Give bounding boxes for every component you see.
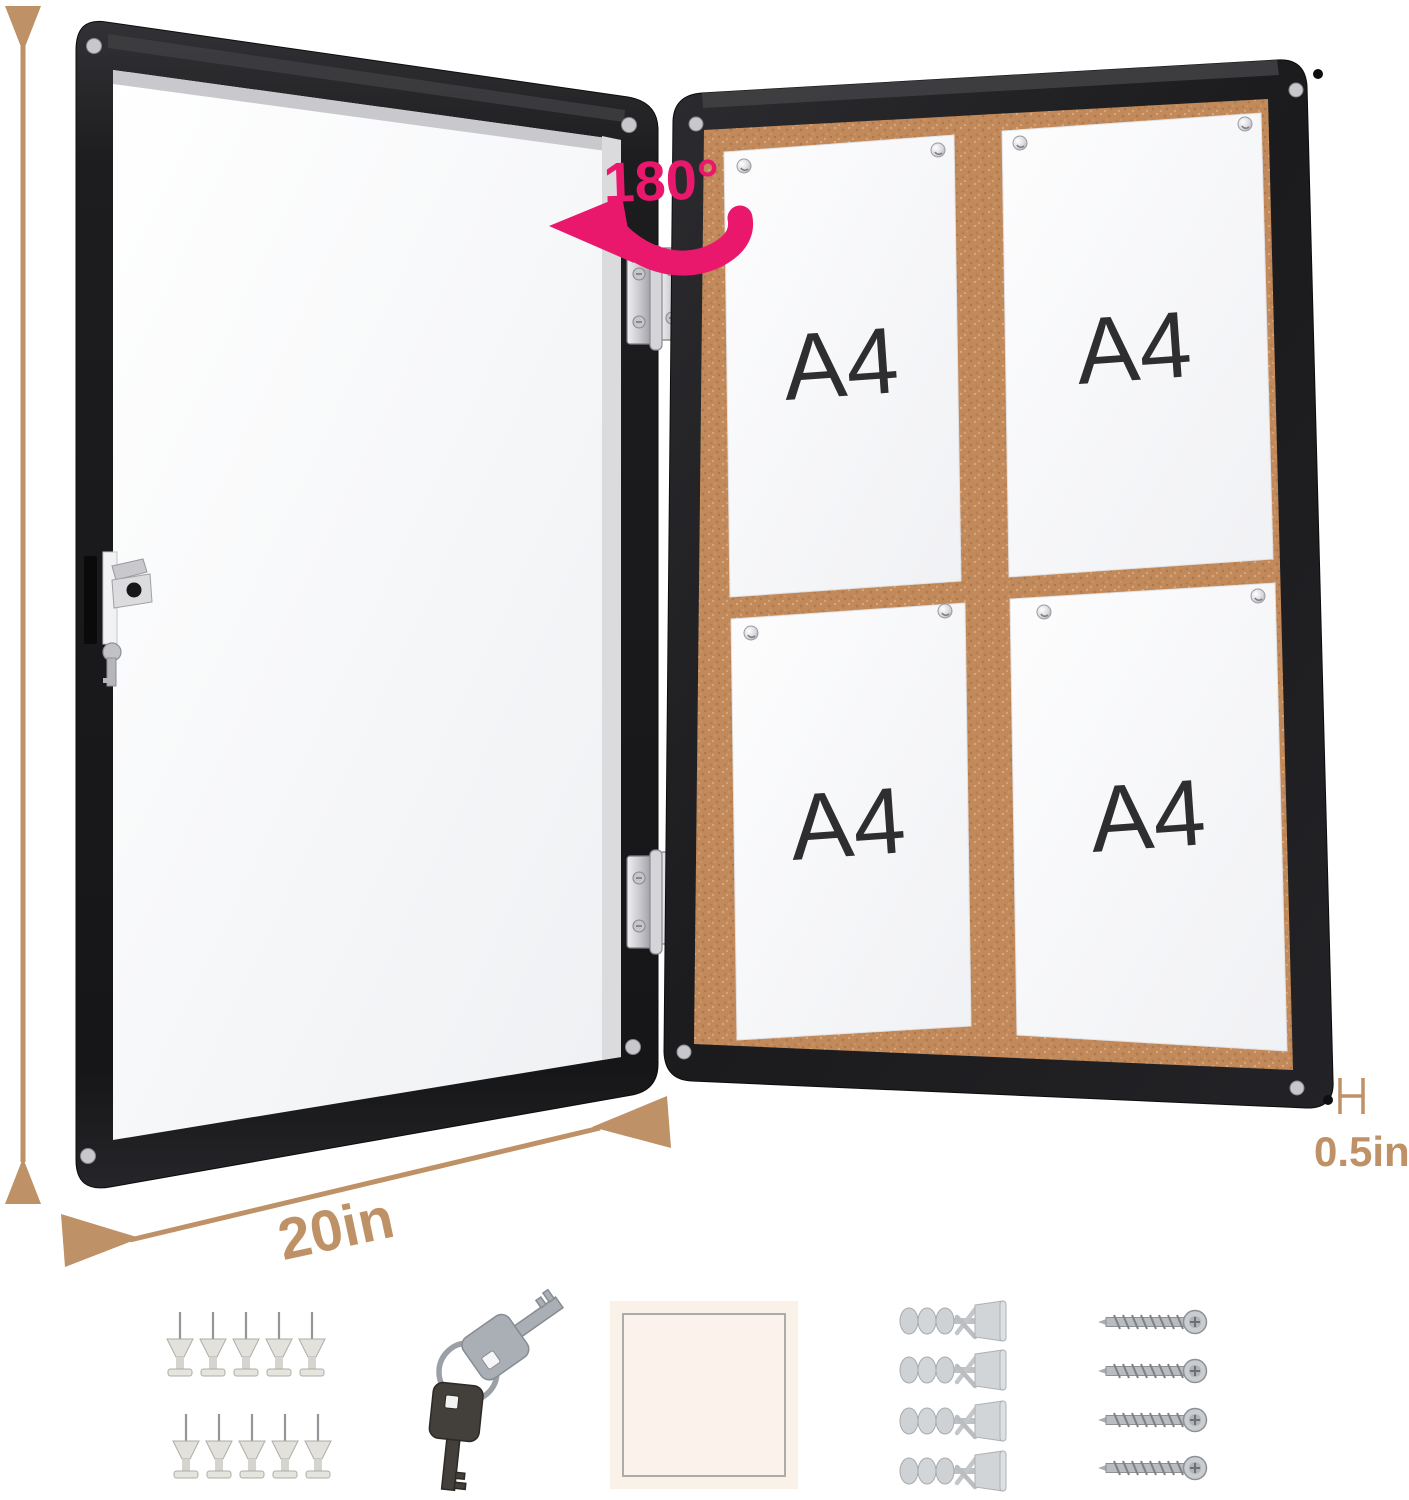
notice-board: A4 A4 A4 A4 [664, 60, 1333, 1108]
a4-paper-label: A4 [787, 767, 909, 880]
arrowhead-bottom [5, 1158, 41, 1204]
screw-icon [1098, 1457, 1207, 1480]
rotation-angle-label: 180° [602, 147, 720, 214]
push-pin-icon [299, 1312, 325, 1376]
corner-rivet [689, 117, 703, 131]
height-dimension-arrow [5, 6, 41, 1204]
paper-pin-icon [737, 159, 751, 173]
wall-anchors-group [900, 1301, 1006, 1491]
push-pin-icon [266, 1312, 292, 1376]
accessories-row [167, 1282, 1207, 1492]
paper-pin-icon [1251, 589, 1265, 603]
glass-side-edge [602, 136, 621, 1060]
corner-rivet [1290, 1081, 1304, 1095]
a4-paper: A4 [1002, 113, 1273, 577]
a4-paper-label: A4 [1073, 291, 1195, 404]
push-pin-icon [233, 1312, 259, 1376]
a4-paper: A4 [1010, 583, 1287, 1051]
cabinet-door [76, 21, 658, 1188]
paper-pin-icon [938, 604, 952, 618]
corner-rivet [622, 118, 637, 133]
wall-anchor-icon [900, 1301, 1006, 1341]
corner-rivet [81, 1149, 96, 1164]
corner-rivet [626, 1040, 641, 1055]
wall-anchor-icon [900, 1451, 1006, 1491]
corner-rivet [1289, 83, 1303, 97]
screws-group [1098, 1311, 1207, 1480]
keyhole-icon [127, 583, 142, 598]
product-image: 26in [0, 0, 1409, 1500]
push-pin-icon [173, 1414, 199, 1478]
depth-bracket-icon [1340, 1078, 1363, 1114]
dark-key-icon [423, 1382, 484, 1493]
push-pin-icon [272, 1414, 298, 1478]
adhesive-pad-icon [610, 1301, 798, 1489]
push-pin-icon [200, 1312, 226, 1376]
screw-icon [1098, 1360, 1207, 1383]
paper-pin-icon [931, 143, 945, 157]
mounting-hole [1323, 1095, 1333, 1105]
push-pin-icon [167, 1312, 193, 1376]
paper-pin-icon [1238, 117, 1252, 131]
depth-dimension-label: 0.5in [1314, 1128, 1409, 1175]
arrowhead-left [61, 1214, 140, 1267]
arrowhead-top [5, 6, 41, 52]
push-pins-group [167, 1312, 331, 1478]
door-glass [113, 70, 621, 1140]
paper-pin-icon [744, 626, 758, 640]
push-pin-icon [206, 1414, 232, 1478]
push-pin-icon [239, 1414, 265, 1478]
annotated-product-diagram: 26in [0, 0, 1409, 1500]
keys-icon [423, 1282, 573, 1492]
width-dimension-label: 20in [272, 1185, 399, 1273]
a4-paper: A4 [724, 135, 961, 597]
paper-pin-icon [1013, 136, 1027, 150]
mounting-hole [1313, 69, 1323, 79]
a4-paper: A4 [731, 603, 971, 1040]
paper-pin-icon [1037, 605, 1051, 619]
screw-icon [1098, 1409, 1207, 1432]
screw-icon [1098, 1311, 1207, 1334]
wall-anchor-icon [900, 1401, 1006, 1441]
corner-rivet [87, 39, 102, 54]
a4-paper-label: A4 [1087, 759, 1209, 872]
a4-paper-label: A4 [780, 307, 902, 420]
wall-anchor-icon [900, 1350, 1006, 1390]
arrowhead-right [592, 1096, 671, 1148]
corner-rivet [677, 1045, 691, 1059]
silver-key-icon [458, 1282, 574, 1384]
push-pin-icon [305, 1414, 331, 1478]
